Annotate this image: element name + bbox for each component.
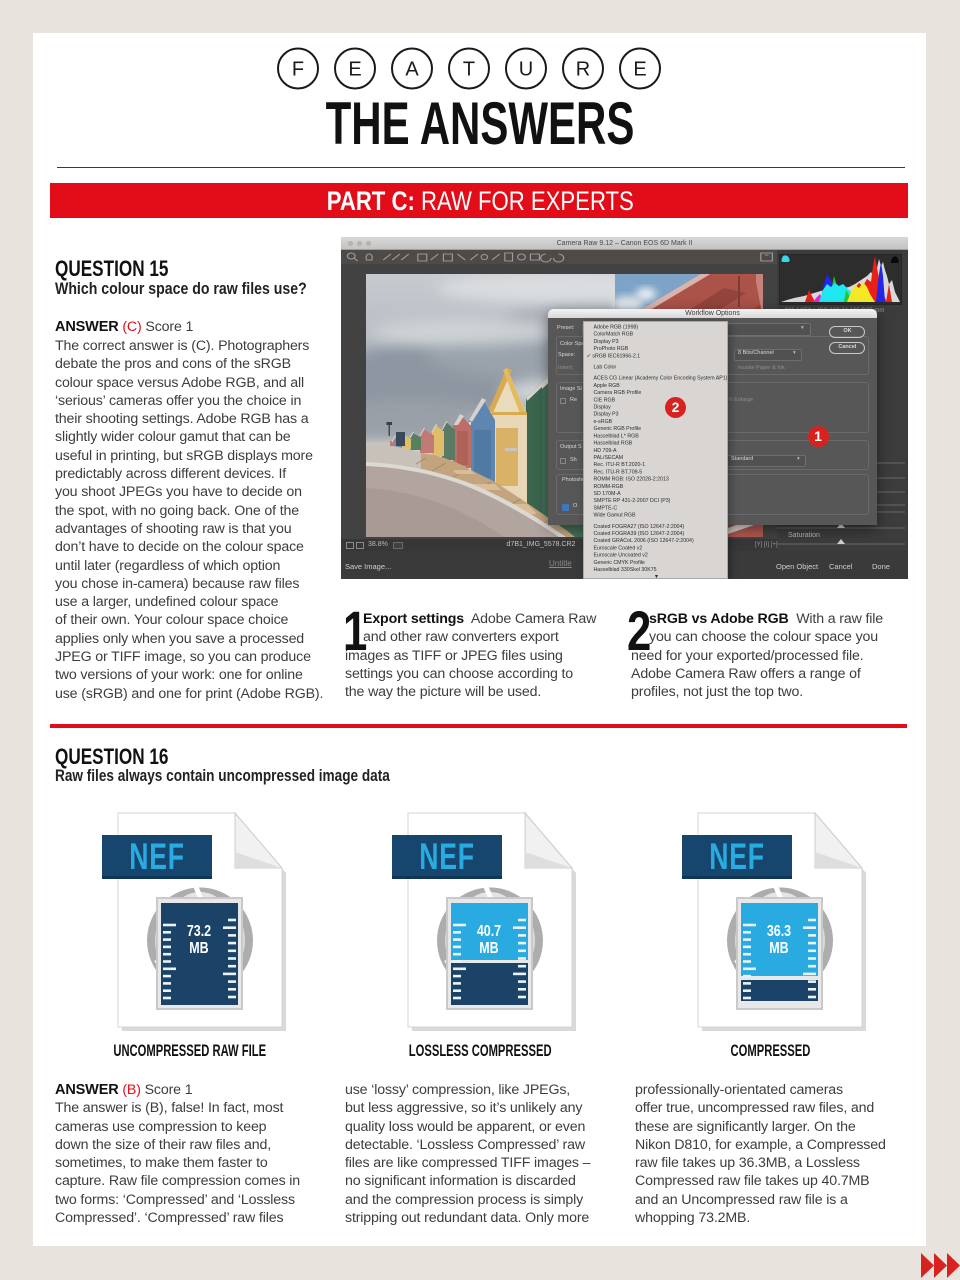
svg-text:NEF: NEF — [709, 836, 764, 877]
svg-text:MB: MB — [189, 940, 208, 958]
svg-text:NEF: NEF — [129, 836, 184, 877]
svg-text:T: T — [463, 59, 475, 81]
svg-text:MB: MB — [479, 940, 498, 958]
svg-text:R: R — [576, 59, 590, 81]
svg-text:36.3: 36.3 — [767, 923, 791, 941]
svg-text:E: E — [348, 59, 361, 81]
svg-text:U: U — [519, 59, 533, 81]
svg-text:A: A — [405, 59, 419, 81]
svg-text:MB: MB — [769, 940, 788, 958]
svg-text:F: F — [292, 59, 304, 81]
svg-text:40.7: 40.7 — [477, 923, 501, 941]
svg-text:E: E — [633, 59, 646, 81]
svg-text:73.2: 73.2 — [187, 923, 211, 941]
svg-text:NEF: NEF — [419, 836, 474, 877]
